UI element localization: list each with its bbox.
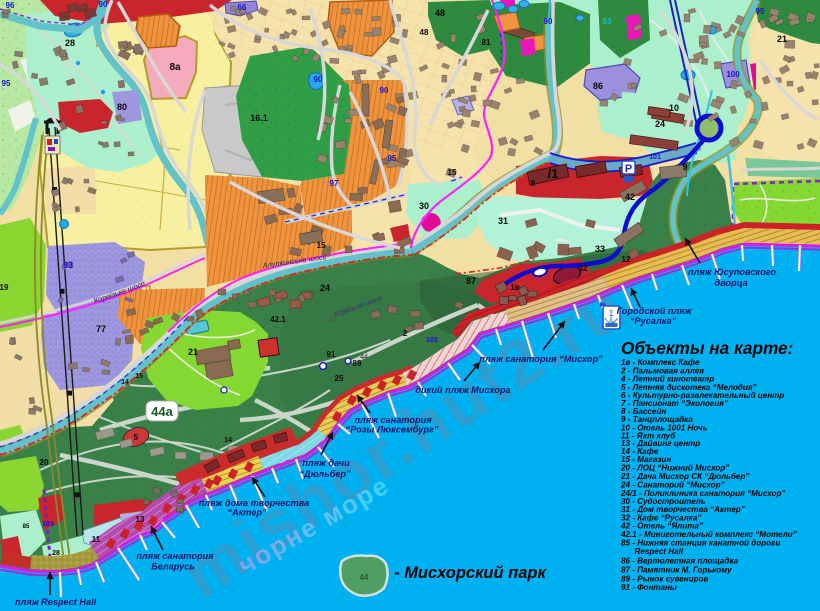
svg-text:97: 97: [330, 179, 339, 188]
svg-text:дикий пляж Мисхора: дикий пляж Мисхора: [415, 385, 510, 395]
svg-text:44: 44: [360, 573, 369, 582]
svg-text:- Мисхорский парк: - Мисхорский парк: [394, 564, 547, 582]
svg-text:53: 53: [603, 17, 612, 26]
svg-text:90: 90: [314, 75, 323, 84]
svg-text:пляж Юсуповского: пляж Юсуповского: [688, 267, 776, 277]
svg-text:93: 93: [63, 260, 73, 270]
svg-text:28: 28: [52, 550, 60, 557]
svg-text:Объекты на карте:: Объекты на карте:: [621, 338, 793, 358]
svg-text:100: 100: [726, 70, 740, 79]
svg-text:103: 103: [42, 521, 54, 528]
svg-text:96: 96: [6, 1, 15, 10]
svg-text:66: 66: [238, 3, 247, 12]
svg-text:91 - Фонтаны: 91 - Фонтаны: [621, 583, 677, 592]
svg-text:13: 13: [136, 515, 145, 524]
svg-text:87 - Памятник М. Горькому: 87 - Памятник М. Горькому: [621, 566, 732, 575]
svg-text:21: 21: [777, 34, 787, 44]
svg-text:2: 2: [403, 329, 408, 338]
svg-text:90: 90: [380, 86, 389, 95]
svg-text:9: 9: [682, 162, 687, 172]
svg-text:11: 11: [92, 535, 101, 544]
svg-text:80: 80: [117, 102, 127, 112]
svg-text:30: 30: [419, 201, 429, 211]
svg-text:42: 42: [625, 192, 635, 202]
svg-text:95: 95: [388, 154, 397, 163]
svg-text:32: 32: [579, 264, 588, 273]
svg-text:14: 14: [121, 379, 129, 386]
svg-text:81: 81: [482, 38, 491, 47]
svg-text:15: 15: [135, 373, 143, 380]
svg-text:16.1: 16.1: [250, 113, 268, 123]
svg-text:77: 77: [96, 324, 106, 334]
svg-text:48: 48: [420, 28, 429, 37]
svg-text:15: 15: [448, 168, 457, 177]
svg-text:дворца: дворца: [714, 278, 747, 288]
svg-text:91: 91: [327, 350, 336, 359]
svg-text:14: 14: [224, 437, 232, 444]
svg-text:5: 5: [134, 433, 139, 442]
svg-text:86: 86: [593, 81, 603, 91]
svg-text:20: 20: [40, 458, 49, 467]
svg-text:“Русалка”: “Русалка”: [630, 316, 677, 326]
svg-text:Беларусь: Беларусь: [151, 562, 195, 572]
svg-text:12: 12: [622, 255, 631, 264]
svg-text:95: 95: [2, 79, 11, 88]
svg-text:Respect Hall: Respect Hall: [621, 547, 684, 556]
svg-text:P: P: [625, 163, 632, 175]
svg-text:“Розы Люксембург”: “Розы Люксембург”: [346, 425, 439, 435]
svg-text:90: 90: [99, 0, 108, 9]
svg-text:/1: /1: [548, 166, 559, 181]
svg-text:48: 48: [435, 8, 445, 18]
svg-text:пляж санатория “Мисхор”: пляж санатория “Мисхор”: [479, 354, 603, 364]
svg-text:“Дюльбер”: “Дюльбер”: [299, 469, 351, 479]
svg-text:8: 8: [531, 179, 536, 188]
svg-text:95: 95: [756, 7, 765, 16]
svg-text:24: 24: [655, 119, 665, 129]
svg-text:пляж Respect Hall: пляж Respect Hall: [15, 597, 97, 607]
svg-text:15: 15: [317, 241, 326, 250]
svg-text:Городской пляж: Городской пляж: [617, 306, 693, 316]
svg-text:44a: 44a: [151, 404, 173, 419]
svg-text:90: 90: [544, 17, 553, 26]
svg-text:21: 21: [188, 347, 198, 357]
svg-text:8a: 8a: [169, 62, 181, 73]
svg-text:86 - Вертолетная площадка: 86 - Вертолетная площадка: [621, 557, 739, 566]
svg-text:“Актер”: “Актер”: [227, 508, 267, 518]
svg-text:42.1: 42.1: [270, 315, 286, 324]
svg-text:44: 44: [360, 354, 368, 361]
svg-text:31: 31: [498, 216, 508, 226]
svg-text:пляж санатория: пляж санатория: [354, 415, 432, 425]
svg-text:28: 28: [65, 38, 75, 48]
svg-text:пляж дома творчества: пляж дома творчества: [199, 498, 309, 508]
svg-text:1в: 1в: [510, 283, 519, 292]
svg-text:пляж санатория: пляж санатория: [136, 551, 214, 561]
svg-text:102: 102: [426, 337, 438, 344]
svg-text:24: 24: [320, 283, 330, 293]
svg-text:101: 101: [649, 154, 661, 161]
svg-text:87: 87: [466, 276, 476, 286]
svg-text:33: 33: [595, 244, 605, 254]
svg-text:19: 19: [0, 283, 9, 292]
svg-text:85: 85: [23, 524, 30, 530]
svg-text:25: 25: [335, 374, 344, 383]
svg-text:10: 10: [669, 103, 679, 113]
svg-text:пляж дачи: пляж дачи: [302, 458, 350, 468]
